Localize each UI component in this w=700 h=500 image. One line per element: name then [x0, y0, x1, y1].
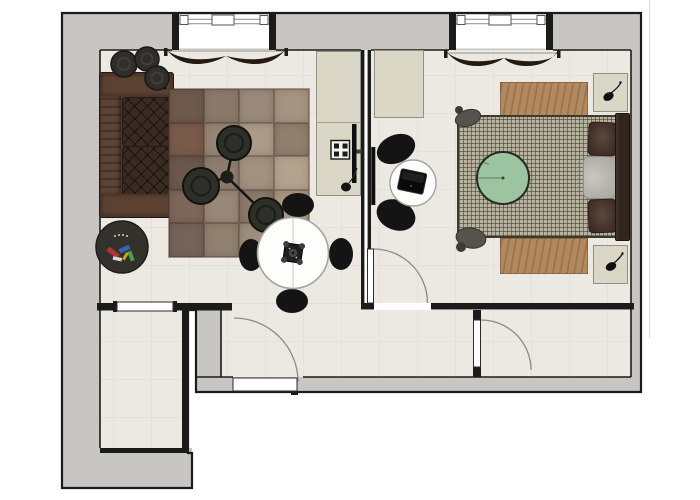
pouf-cluster: [111, 47, 169, 90]
plant-icon: [604, 252, 623, 272]
dining-chair: [282, 193, 314, 217]
dining-chair: [329, 238, 353, 270]
bedroom-window-curtain: [444, 50, 561, 66]
bedroom-tv: [371, 147, 375, 205]
plant-icon: [602, 81, 622, 102]
wall-art: [331, 141, 350, 160]
dining-chair: [276, 289, 308, 313]
bedroom-workspace: [372, 128, 436, 236]
floor-plan: [0, 0, 700, 500]
table-centerpiece: [281, 241, 306, 266]
magazine-basket: [96, 221, 148, 273]
plan-items-layer: [0, 0, 700, 500]
green-round-throw: [477, 152, 529, 204]
nesting-coffee-tables: [183, 126, 283, 232]
living-window-curtain: [164, 48, 288, 64]
